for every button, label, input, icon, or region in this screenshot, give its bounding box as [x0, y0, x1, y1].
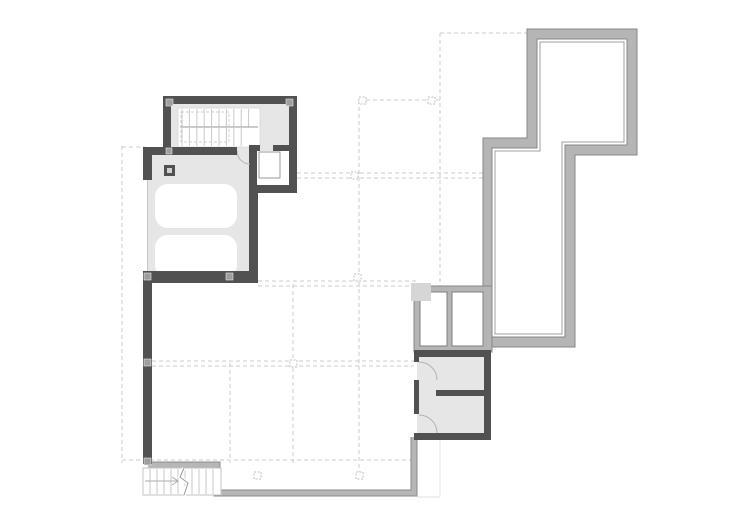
stair-room-wall-bottom — [143, 147, 237, 155]
garage-wall-bottom — [143, 271, 258, 283]
wall-marker — [144, 273, 151, 280]
service-wall-right — [484, 350, 491, 440]
grid-marker — [354, 274, 361, 281]
wall-marker — [144, 359, 151, 366]
upper-volume-outline — [483, 29, 637, 347]
stair-room-wall-top — [163, 96, 297, 104]
corner-marker — [166, 148, 172, 154]
corner-marker — [166, 99, 173, 106]
service-wall-bottom — [414, 433, 491, 440]
elevator-wall-top-left — [249, 145, 260, 151]
grid-marker — [254, 472, 261, 479]
column-core — [167, 168, 172, 173]
service-wall-internal — [436, 390, 484, 396]
floor-plan-canvas — [0, 0, 756, 528]
grid-marker — [356, 472, 363, 479]
exterior-stair — [143, 468, 221, 495]
service-wall-top — [414, 350, 491, 357]
elevator-wall-bottom — [249, 185, 297, 193]
service-wall-left-b — [414, 380, 419, 414]
service-rooms — [414, 350, 491, 440]
service-wall-left-a — [414, 350, 419, 362]
hidden-edge-outline — [417, 437, 440, 497]
elevator-wall-top-right — [273, 145, 289, 151]
garage-wall-left-long — [143, 276, 152, 464]
skylight-block — [411, 283, 492, 352]
wall-marker — [144, 458, 151, 465]
stair-room-wall-right — [289, 96, 297, 193]
car-1 — [155, 184, 237, 228]
corner-marker — [286, 99, 293, 106]
grid-marker — [351, 172, 358, 179]
parapet-inner-line — [495, 42, 624, 334]
grid-marker — [359, 97, 366, 104]
floor-plan-drawing — [0, 0, 756, 528]
corner-patch — [411, 283, 431, 301]
garage-wall-right — [249, 145, 258, 283]
grid-marker — [428, 97, 435, 104]
parapet-band — [483, 29, 637, 347]
skylight-2 — [452, 292, 483, 346]
wall-marker — [226, 273, 233, 280]
elevator-car — [259, 152, 280, 178]
garage — [143, 145, 258, 465]
grid-marker — [290, 360, 297, 367]
